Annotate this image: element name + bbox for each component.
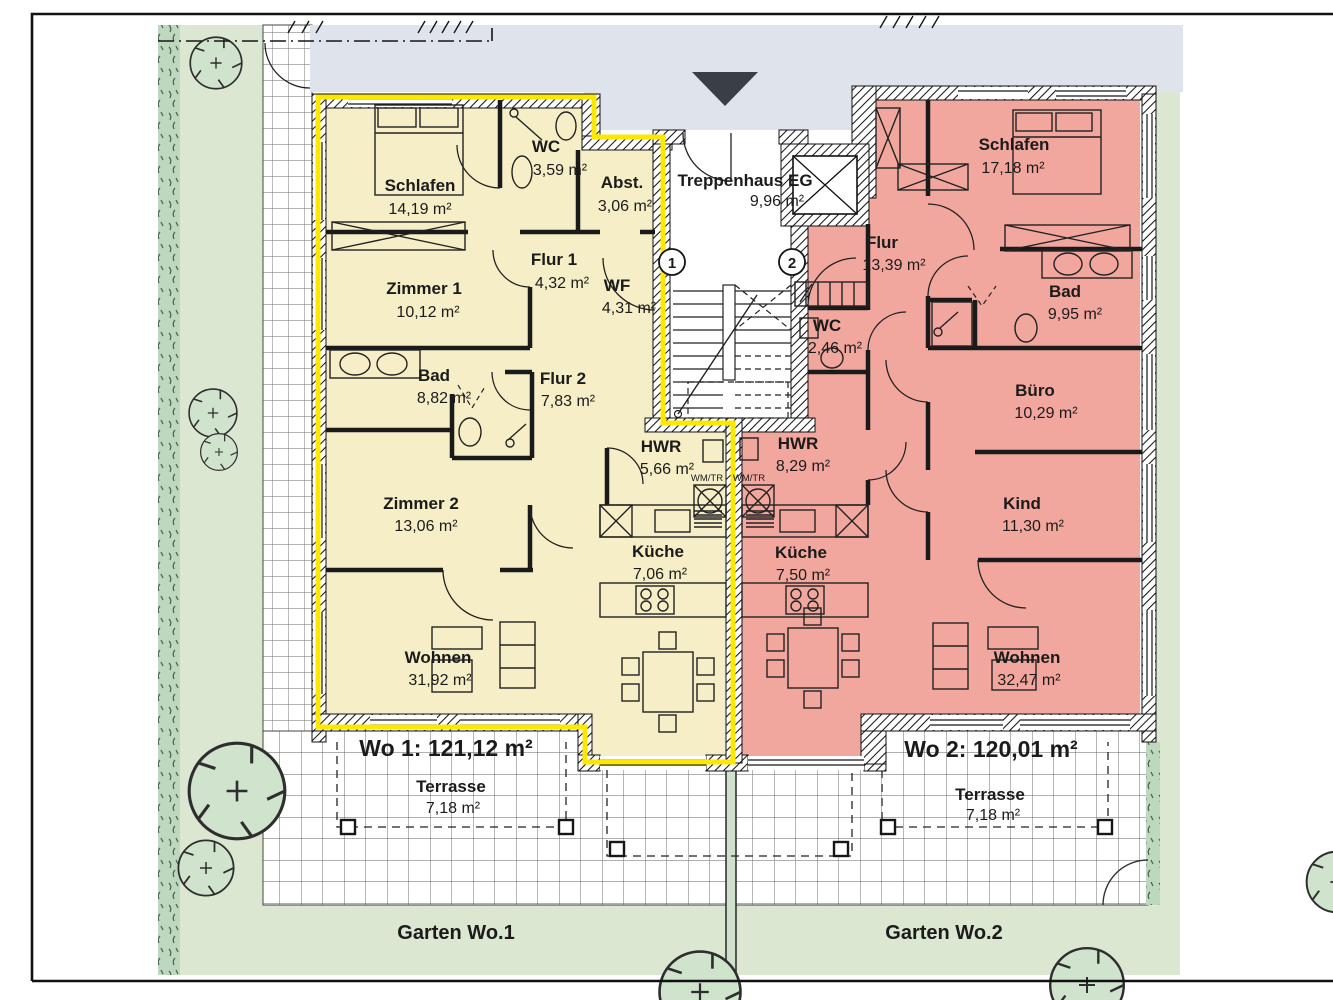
entrance-2-number: 2 [788, 255, 796, 272]
room-label: Wohnen [405, 648, 472, 667]
terrace1-label: Terrasse [416, 777, 486, 796]
room-label: Schlafen [385, 176, 456, 195]
room-label: Bad [1049, 282, 1081, 301]
room-area: 3,59 m² [533, 162, 588, 179]
tree-icon [201, 434, 238, 471]
room-label: WC [532, 137, 560, 156]
tree-icon [1307, 852, 1333, 913]
room-label: Flur [866, 233, 898, 252]
terrace2-label: Terrasse [955, 785, 1025, 804]
room-area: 9,95 m² [1048, 306, 1103, 323]
garden-path [263, 25, 312, 742]
room-area: 7,06 m² [633, 566, 688, 583]
stairwell-label: Treppenhaus EG [677, 171, 812, 190]
room-area: 11,30 m² [1002, 518, 1065, 535]
room-label: HWR [778, 434, 819, 453]
floor-plan-drawing: Treppenhaus EG 9,96 m² 1 2 Schlafen 14,1… [0, 0, 1333, 1000]
floor-plan-page: Treppenhaus EG 9,96 m² 1 2 Schlafen 14,1… [0, 0, 1333, 1000]
wm-tr-label: WM/TR [691, 473, 723, 484]
tree-icon [189, 389, 237, 437]
room-area: 14,19 m² [388, 201, 452, 218]
terrace2-area: 7,18 m² [966, 807, 1021, 824]
room-area: 5,66 m² [640, 461, 695, 478]
room-label: HWR [641, 437, 682, 456]
terrace1-area: 7,18 m² [426, 800, 481, 817]
room-area: 32,47 m² [997, 672, 1061, 689]
room-area: 31,92 m² [408, 672, 472, 689]
room-area: 7,50 m² [776, 567, 831, 584]
room-area: 4,32 m² [535, 275, 590, 292]
room-label: WC [813, 316, 841, 335]
room-label: Zimmer 1 [386, 279, 462, 298]
entrance-1-number: 1 [668, 255, 676, 272]
room-label: Küche [632, 542, 684, 561]
apartment2-total: Wo 2: 120,01 m² [904, 736, 1078, 762]
room-area: 2,46 m² [808, 340, 863, 357]
room-label: Flur 2 [540, 369, 586, 388]
room-area: 8,82 m² [417, 390, 472, 407]
tree-icon [178, 840, 233, 895]
garden-divider-hedge [726, 742, 736, 975]
room-area: 4,31 m² [602, 300, 657, 317]
room-area: 3,06 m² [598, 198, 653, 215]
room-area: 8,29 m² [776, 458, 831, 475]
room-label: Flur 1 [531, 250, 577, 269]
tree-icon [190, 37, 242, 89]
garden2-label: Garten Wo.2 [885, 922, 1002, 944]
room-label: Zimmer 2 [383, 494, 459, 513]
room-label: Küche [775, 543, 827, 562]
room-label: WF [604, 276, 630, 295]
room-label: Kind [1003, 494, 1041, 513]
room-label: Abst. [601, 173, 644, 192]
garden1-label: Garten Wo.1 [397, 922, 514, 944]
room-label: Wohnen [994, 648, 1061, 667]
apartment1-total: Wo 1: 121,12 m² [359, 735, 533, 761]
room-area: 17,18 m² [981, 160, 1045, 177]
stairwell-area: 9,96 m² [750, 193, 805, 210]
hedge-left-texture [158, 25, 180, 975]
room-area: 10,12 m² [396, 304, 460, 321]
room-label: Büro [1015, 381, 1055, 400]
wm-tr-label: WM/TR [733, 473, 765, 484]
staircase [673, 285, 791, 418]
room-area: 13,06 m² [394, 518, 458, 535]
room-area: 10,29 m² [1014, 405, 1078, 422]
room-area: 7,83 m² [541, 393, 596, 410]
tree-icon [189, 743, 285, 839]
hedge-right-texture [1146, 742, 1160, 905]
room-label: Bad [418, 366, 450, 385]
room-label: Schlafen [979, 135, 1050, 154]
room-area: 13,39 m² [862, 257, 926, 274]
entrance-markers [659, 249, 805, 275]
